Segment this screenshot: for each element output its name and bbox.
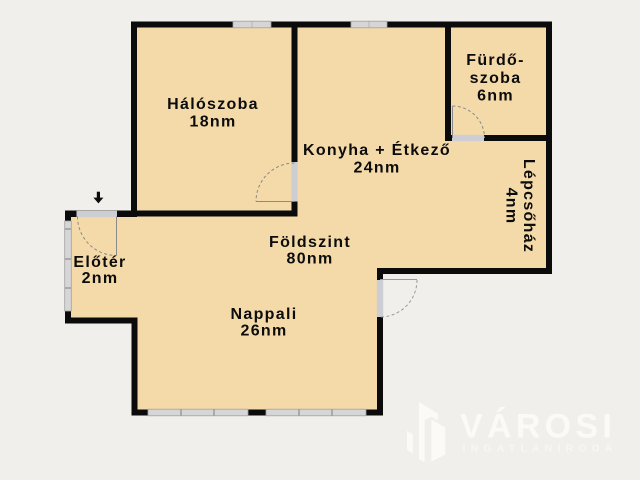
svg-text:80nm: 80nm (287, 251, 334, 268)
svg-text:Előtér: Előtér (73, 254, 126, 271)
svg-text:4nm: 4nm (503, 188, 520, 225)
svg-text:2nm: 2nm (82, 270, 119, 287)
svg-text:INGATLANIRODA: INGATLANIRODA (463, 443, 618, 455)
svg-text:szoba: szoba (470, 70, 522, 87)
svg-text:18nm: 18nm (190, 114, 237, 131)
svg-text:6nm: 6nm (477, 88, 514, 105)
svg-text:Konyha + Étkező: Konyha + Étkező (303, 140, 451, 159)
svg-text:Fürdő-: Fürdő- (466, 52, 524, 69)
svg-text:Nappali: Nappali (231, 306, 298, 323)
svg-text:VÁROSI: VÁROSI (460, 408, 616, 446)
svg-text:26nm: 26nm (241, 323, 288, 340)
svg-text:Lépcsőház: Lépcsőház (520, 159, 537, 253)
svg-text:24nm: 24nm (354, 160, 401, 177)
svg-text:Hálószoba: Hálószoba (167, 96, 259, 113)
svg-text:Földszint: Földszint (269, 234, 351, 251)
